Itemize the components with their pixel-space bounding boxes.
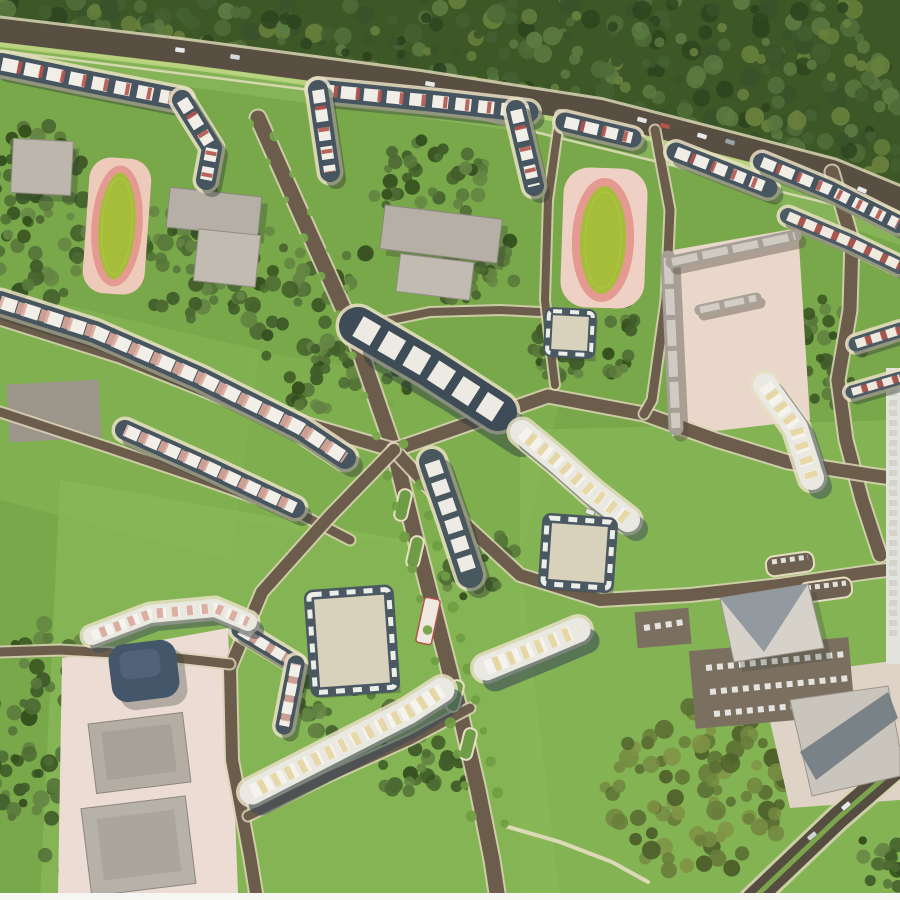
school-right-west-bar [668, 258, 681, 434]
school-left-b [193, 229, 260, 287]
building-u-left-leg [318, 90, 336, 179]
stadium-right-track [574, 181, 632, 299]
masterplan-aerial-render [0, 0, 900, 900]
letterbox-bottom [0, 893, 900, 900]
campus-dark-building-top [118, 648, 161, 681]
parking-lot-small [635, 608, 692, 649]
scene-canvas [0, 0, 900, 900]
kindergarten-west [309, 589, 401, 698]
building-row-right-1 [856, 330, 900, 350]
building-row-lower-left-b [284, 664, 302, 733]
school-topleft [11, 138, 74, 195]
kindergarten-center [543, 518, 618, 595]
kindergarten-north [547, 311, 598, 361]
campus-gray-building-1-roof [101, 724, 176, 780]
campus-gray-building-2-roof [97, 809, 182, 880]
